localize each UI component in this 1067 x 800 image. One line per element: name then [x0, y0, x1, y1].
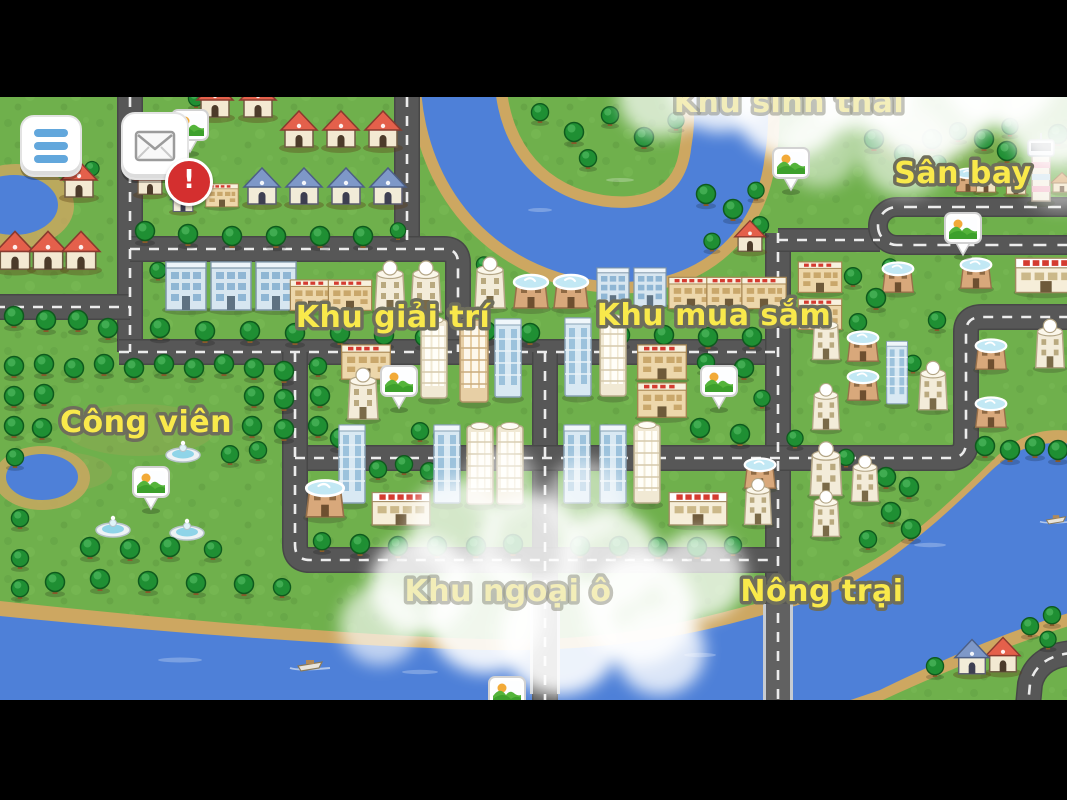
- office-tan: [635, 383, 689, 423]
- tree: [274, 420, 294, 445]
- envelope-icon: [134, 130, 176, 162]
- tree: [411, 423, 429, 445]
- tree: [64, 359, 84, 384]
- tree: [178, 225, 198, 250]
- sky-cream: [631, 422, 663, 510]
- tree: [124, 359, 144, 384]
- notification-badge: !: [165, 158, 213, 206]
- tree: [926, 658, 944, 680]
- round-pool: [973, 398, 1009, 433]
- tree: [579, 150, 597, 172]
- tree: [844, 268, 862, 290]
- tree: [723, 200, 743, 225]
- tree: [154, 355, 174, 380]
- tree: [274, 390, 294, 415]
- tree: [45, 573, 65, 598]
- round-pool: [511, 275, 551, 314]
- tree: [901, 520, 921, 545]
- round-pool: [551, 275, 591, 314]
- tree: [80, 538, 100, 563]
- tree: [150, 262, 167, 283]
- tree: [1025, 437, 1045, 462]
- tree: [1000, 441, 1020, 466]
- tree: [1048, 441, 1067, 466]
- round-pool: [303, 481, 347, 524]
- tree: [520, 324, 540, 349]
- tree: [204, 541, 222, 563]
- tree: [876, 468, 896, 493]
- mail-button[interactable]: !: [121, 112, 189, 180]
- tree: [94, 355, 114, 380]
- tree: [11, 580, 29, 602]
- region-label-khu-ngoai-o: Khu ngoại ô: [405, 574, 612, 609]
- round-pool: [845, 371, 881, 406]
- tree: [310, 387, 330, 412]
- tree: [1021, 618, 1039, 640]
- tree: [353, 227, 373, 252]
- tree: [249, 442, 267, 464]
- tree: [273, 579, 291, 601]
- city-map[interactable]: Khu sinh tháiSân bayKhu giải tríKhu mua …: [0, 97, 1067, 700]
- region-label-nong-trai: Nông trại: [740, 574, 903, 609]
- tree: [135, 222, 155, 247]
- region-label-cong-vien: Công viên: [60, 405, 232, 440]
- tree: [866, 289, 886, 314]
- tree: [242, 417, 262, 442]
- tree: [98, 319, 118, 344]
- round-pool: [958, 259, 994, 294]
- tree: [696, 185, 716, 210]
- tree: [690, 419, 710, 444]
- tree: [184, 359, 204, 384]
- office-tan: [796, 262, 844, 298]
- tree: [160, 538, 180, 563]
- tree: [4, 357, 24, 382]
- office-blue: [162, 262, 210, 315]
- region-label-khu-giai-tri: Khu giải trí: [296, 300, 492, 335]
- tree: [881, 503, 901, 528]
- tree: [11, 550, 29, 572]
- tree: [928, 312, 946, 334]
- tree: [309, 358, 327, 380]
- hamburger-icon: [34, 129, 68, 137]
- game-screen: Khu sinh tháiSân bayKhu giải tríKhu mua …: [0, 0, 1067, 800]
- region-label-khu-mua-sam: Khu mua sắm: [597, 297, 832, 333]
- tree: [36, 311, 56, 336]
- office-blue: [207, 262, 255, 315]
- tree: [222, 227, 242, 252]
- tree: [68, 311, 88, 336]
- tree: [310, 227, 330, 252]
- tree: [244, 359, 264, 384]
- letterbox-bottom: [0, 700, 1067, 800]
- tree: [730, 425, 750, 450]
- sky-blue: [884, 341, 910, 409]
- tree: [120, 540, 140, 565]
- tree: [6, 449, 24, 471]
- tree: [313, 533, 331, 555]
- tree: [369, 461, 387, 483]
- office-tan: [635, 345, 689, 385]
- tree: [395, 456, 413, 478]
- tree: [748, 182, 765, 203]
- tree: [704, 233, 721, 254]
- round-pool: [973, 340, 1009, 375]
- tree: [266, 227, 286, 252]
- tree: [1040, 631, 1057, 652]
- pin-bridge[interactable]: [489, 677, 525, 700]
- tree: [975, 437, 995, 462]
- round-pool: [880, 263, 916, 298]
- tree: [90, 570, 110, 595]
- tree: [34, 385, 54, 410]
- tree: [4, 387, 24, 412]
- sky-blue: [492, 319, 524, 404]
- tree: [4, 307, 24, 332]
- tree: [564, 123, 584, 148]
- tree: [274, 362, 294, 387]
- region-label-san-bay: Sân bay: [894, 156, 1032, 191]
- shop-red: [667, 493, 728, 531]
- tree: [195, 322, 215, 347]
- shop-red: [1014, 258, 1067, 298]
- tree: [221, 446, 239, 468]
- tree: [150, 319, 170, 344]
- tree: [531, 104, 549, 126]
- tree: [308, 417, 328, 442]
- tree: [244, 387, 264, 412]
- tree: [11, 510, 29, 532]
- tree: [754, 390, 771, 411]
- tree: [390, 223, 406, 243]
- tree: [240, 322, 260, 347]
- tree: [4, 417, 24, 442]
- tree: [601, 107, 619, 129]
- tree: [350, 535, 370, 560]
- region-label-khu-sinh-thai: Khu sinh thái: [674, 97, 904, 120]
- tree: [186, 574, 206, 599]
- tree: [787, 430, 804, 451]
- tree: [234, 575, 254, 600]
- tree: [899, 478, 919, 503]
- tree: [34, 355, 54, 380]
- round-pool: [845, 332, 881, 367]
- house-red: [238, 97, 278, 123]
- tree: [138, 572, 158, 597]
- menu-button[interactable]: [20, 115, 82, 177]
- tree: [859, 531, 877, 553]
- sky-blue: [562, 318, 594, 403]
- tree: [214, 355, 234, 380]
- tree: [1043, 607, 1061, 629]
- letterbox-top: [0, 0, 1067, 97]
- tree: [32, 419, 52, 444]
